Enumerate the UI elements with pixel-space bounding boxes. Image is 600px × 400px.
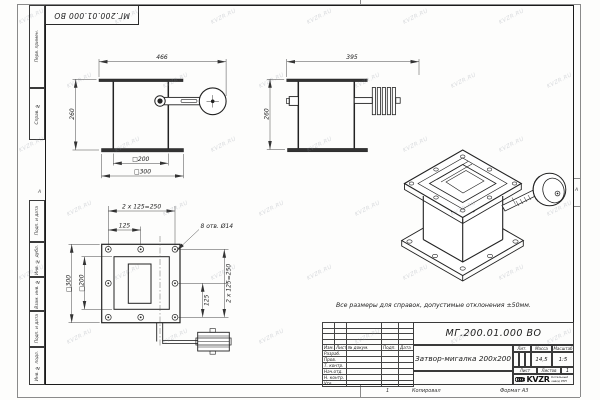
side-dim-height: 260 (264, 108, 271, 120)
sig-row-tkontr: Т. контр. (323, 363, 347, 369)
lit-label: Лит. (513, 345, 531, 352)
sheets-label: Листов (537, 367, 561, 374)
company-cell: KVZR Котельный завод РЭП (513, 374, 574, 385)
company-name-line2: завод РЭП (551, 380, 568, 383)
flange-dim-pitch-total-top: 2 x 125=250 (122, 204, 161, 211)
front-view: 466 260 □200 □300 (69, 54, 226, 178)
flange-dim-outer: □300 (66, 275, 73, 292)
title-block-left: Изм. Лист № докум. Подп. Дата Разраб. Пр… (322, 322, 414, 387)
isometric-view (402, 150, 568, 281)
front-dim-outer: □300 (134, 169, 151, 176)
flange-holes-label: 8 отв. Ø14 (201, 223, 234, 230)
flange-dim-pitch-total-right: 2 x 125=250 (225, 264, 232, 303)
col-izm: Изм. (323, 345, 335, 351)
sheets-value: 1 (561, 367, 574, 374)
front-dim-inner: □200 (132, 156, 149, 163)
scale-label: Масштаб (552, 345, 574, 352)
sheet-label: Лист (513, 367, 537, 374)
logo-text: KVZR (527, 375, 550, 384)
doc-number-cell: МГ.200.01.000 ВО (413, 322, 574, 345)
front-dim-height: 260 (69, 108, 76, 120)
drawing-name-cell: Затвор-мигалка 200х200 (413, 345, 513, 371)
drawing-sheet: МГ.200.01.000 ВО Перв. примен. Справ. № … (0, 0, 600, 400)
col-list: Лист (335, 345, 347, 351)
spring-logo-icon (515, 375, 525, 384)
mass-value: 14,5 (531, 352, 552, 367)
sig-row-utv: Утв. (323, 381, 347, 387)
flange-dim-inner: □200 (78, 274, 85, 291)
mass-label: Масса (531, 345, 552, 352)
scale-value: 1:5 (552, 352, 574, 367)
sig-row-nkontr: Н. контр. (323, 375, 347, 381)
side-view: 395 260 (264, 54, 419, 152)
front-dim-width: 466 (156, 54, 168, 61)
flange-dim-pitch-right: 125 (204, 294, 211, 306)
side-dim-width: 395 (346, 54, 358, 61)
flange-dim-pitch-top: 125 (119, 223, 131, 230)
flange-view: 2 x 125=250 125 8 отв. Ø14 □300 □200 2 x… (66, 204, 234, 355)
empty-cell (413, 371, 513, 385)
